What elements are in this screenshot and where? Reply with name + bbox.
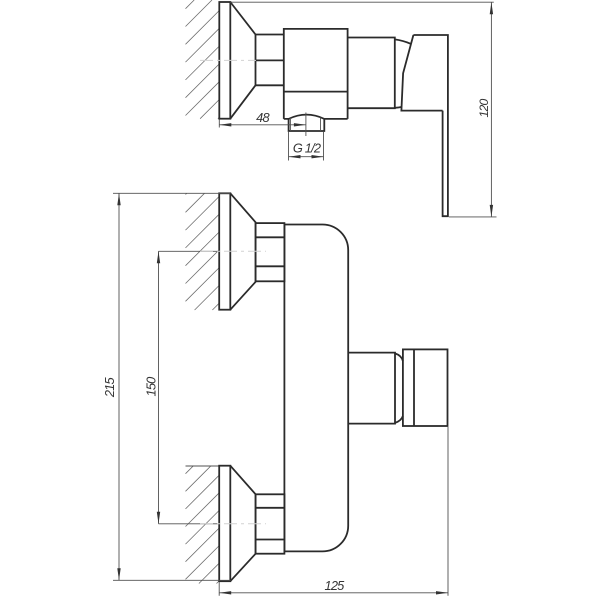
svg-text:G 1/2: G 1/2 bbox=[293, 140, 321, 155]
svg-text:215: 215 bbox=[102, 377, 117, 399]
svg-text:150: 150 bbox=[144, 376, 159, 397]
svg-text:120: 120 bbox=[477, 99, 491, 118]
svg-text:125: 125 bbox=[325, 578, 346, 593]
svg-text:48: 48 bbox=[256, 110, 270, 125]
